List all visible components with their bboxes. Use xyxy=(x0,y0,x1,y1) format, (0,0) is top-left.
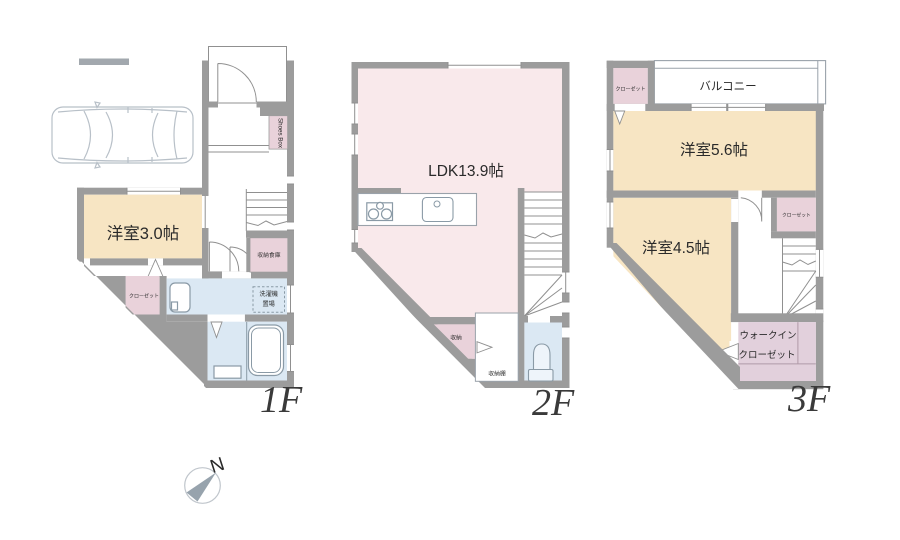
svg-text:2F: 2F xyxy=(532,382,575,424)
svg-text:クローゼット: クローゼット xyxy=(615,86,645,93)
svg-text:3F: 3F xyxy=(787,378,831,420)
svg-text:洋室3.0帖: 洋室3.0帖 xyxy=(107,224,179,243)
svg-text:置場: 置場 xyxy=(263,300,275,308)
svg-text:Shoes Box: Shoes Box xyxy=(277,118,284,149)
svg-text:収納棚: 収納棚 xyxy=(488,370,506,378)
svg-text:ウォークイン: ウォークイン xyxy=(739,331,796,342)
svg-text:クローゼット: クローゼット xyxy=(129,293,159,300)
svg-text:収納食庫: 収納食庫 xyxy=(257,251,280,259)
svg-text:洗濯機: 洗濯機 xyxy=(259,290,278,298)
svg-text:1F: 1F xyxy=(260,379,303,421)
svg-text:洋室5.6帖: 洋室5.6帖 xyxy=(680,141,748,159)
svg-text:クローゼット: クローゼット xyxy=(782,212,811,219)
svg-text:収納: 収納 xyxy=(450,334,462,342)
svg-text:LDK13.9帖: LDK13.9帖 xyxy=(428,162,504,180)
svg-text:洋室4.5帖: 洋室4.5帖 xyxy=(642,239,710,257)
svg-text:クローゼット: クローゼット xyxy=(738,349,795,361)
svg-text:バルコニー: バルコニー xyxy=(699,80,756,93)
